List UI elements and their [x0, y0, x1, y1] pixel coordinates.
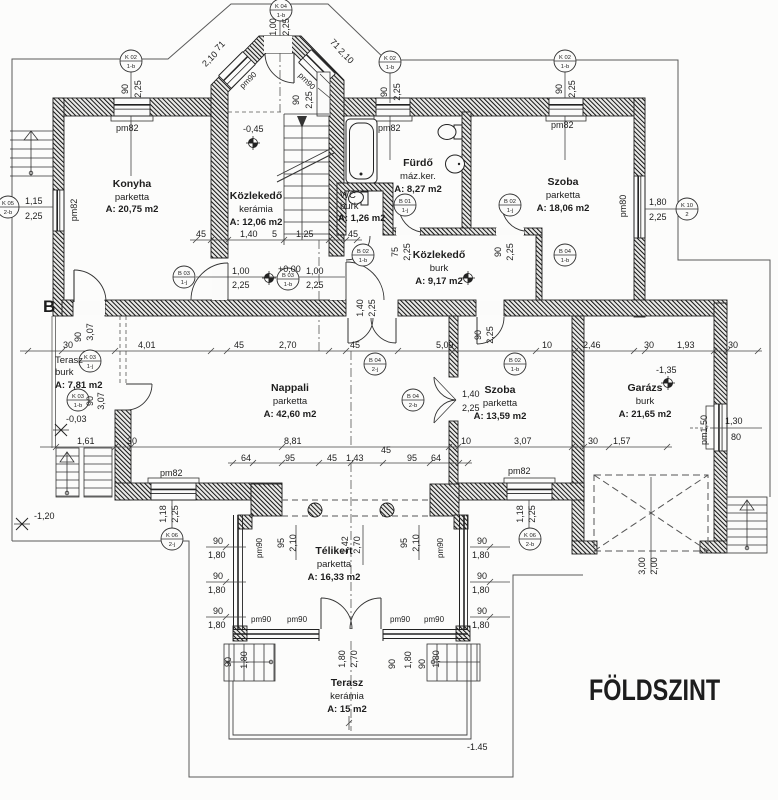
svg-text:1-b: 1-b: [277, 13, 285, 19]
svg-text:90: 90: [493, 247, 503, 257]
svg-text:45: 45: [350, 340, 360, 350]
svg-text:1-b: 1-b: [359, 258, 367, 264]
svg-text:90: 90: [379, 87, 389, 97]
svg-text:90: 90: [73, 332, 83, 342]
svg-text:burk: burk: [636, 396, 655, 407]
svg-text:64: 64: [241, 453, 251, 463]
svg-text:A: 15 m2: A: 15 m2: [327, 704, 367, 715]
svg-text:1,80: 1,80: [472, 585, 490, 595]
svg-text:pm82: pm82: [508, 466, 531, 476]
svg-text:90: 90: [417, 659, 427, 669]
svg-text:1-j: 1-j: [402, 208, 408, 214]
svg-text:K 06: K 06: [166, 533, 178, 539]
svg-text:1,80: 1,80: [239, 651, 249, 669]
svg-text:1-b: 1-b: [561, 258, 569, 264]
svg-text:A: 21,65 m2: A: 21,65 m2: [619, 409, 672, 420]
svg-text:90: 90: [387, 659, 397, 669]
svg-text:1,80: 1,80: [337, 650, 347, 668]
svg-text:K 03: K 03: [72, 394, 84, 400]
svg-text:2,25: 2,25: [170, 505, 180, 523]
svg-text:90: 90: [120, 84, 130, 94]
svg-text:30: 30: [588, 436, 598, 446]
svg-text:30: 30: [644, 340, 654, 350]
svg-text:1-j: 1-j: [507, 208, 513, 214]
svg-text:2,25: 2,25: [527, 505, 537, 523]
svg-text:-0,45: -0,45: [243, 124, 264, 134]
svg-text:pm82: pm82: [69, 199, 79, 222]
svg-text:B: B: [43, 297, 55, 316]
svg-text:90: 90: [477, 571, 487, 581]
svg-text:3,00: 3,00: [637, 557, 647, 575]
svg-text:Garázs: Garázs: [627, 382, 662, 394]
svg-text:parketta: parketta: [115, 192, 150, 203]
svg-text:Fürdő: Fürdő: [403, 157, 433, 169]
svg-text:1,80: 1,80: [208, 550, 226, 560]
svg-text:2-b: 2-b: [526, 542, 534, 548]
svg-text:1,00: 1,00: [232, 266, 250, 276]
svg-text:K 10: K 10: [681, 203, 693, 209]
svg-text:2,70: 2,70: [352, 536, 362, 554]
svg-text:95: 95: [276, 538, 286, 548]
svg-text:Közlekedő: Közlekedő: [413, 249, 466, 261]
svg-text:90: 90: [223, 657, 233, 667]
svg-text:parketta: parketta: [317, 559, 352, 570]
svg-text:64: 64: [431, 453, 441, 463]
svg-text:1,40: 1,40: [355, 299, 365, 317]
svg-text:45: 45: [381, 445, 391, 455]
svg-text:1-j: 1-j: [181, 280, 187, 286]
svg-text:2,70: 2,70: [279, 340, 297, 350]
svg-text:pm1,50: pm1,50: [699, 415, 709, 445]
svg-text:B 04: B 04: [407, 394, 420, 400]
svg-text:pm90: pm90: [251, 615, 272, 624]
svg-text:90: 90: [85, 396, 95, 406]
svg-text:30: 30: [63, 340, 73, 350]
svg-text:1,57: 1,57: [613, 436, 631, 446]
svg-text:2,25: 2,25: [505, 243, 515, 261]
svg-text:1-b: 1-b: [561, 64, 569, 70]
svg-text:3,07: 3,07: [514, 436, 532, 446]
svg-text:Nappali: Nappali: [271, 382, 309, 394]
svg-text:+0,00: +0,00: [278, 264, 301, 274]
svg-text:45: 45: [196, 229, 206, 239]
svg-text:30: 30: [728, 340, 738, 350]
svg-text:2,25: 2,25: [462, 403, 480, 413]
svg-text:45: 45: [327, 453, 337, 463]
svg-text:2,00: 2,00: [649, 557, 659, 575]
svg-text:30: 30: [127, 436, 137, 446]
svg-text:A: 16,33 m2: A: 16,33 m2: [308, 572, 361, 583]
svg-text:1,80: 1,80: [472, 620, 490, 630]
svg-text:1,40: 1,40: [462, 389, 480, 399]
svg-text:pm82: pm82: [378, 123, 401, 133]
svg-text:1,93: 1,93: [677, 340, 695, 350]
svg-text:A: 42,60 m2: A: 42,60 m2: [264, 409, 317, 420]
svg-text:pm90: pm90: [255, 537, 264, 558]
svg-text:10: 10: [542, 340, 552, 350]
svg-text:Terasz: Terasz: [331, 677, 364, 689]
svg-text:A: 12,06 m2: A: 12,06 m2: [230, 217, 283, 228]
svg-text:máz.ker.: máz.ker.: [400, 171, 436, 182]
svg-text:1-b: 1-b: [127, 64, 135, 70]
svg-text:A: 20,75 m2: A: 20,75 m2: [106, 204, 159, 215]
svg-text:pm90: pm90: [287, 615, 308, 624]
svg-text:1,18: 1,18: [515, 505, 525, 523]
svg-text:2,25: 2,25: [402, 243, 412, 261]
svg-text:B 04: B 04: [369, 358, 382, 364]
svg-text:2,46: 2,46: [583, 340, 601, 350]
svg-text:Konyha: Konyha: [113, 178, 152, 190]
svg-text:A: 9,17 m2: A: 9,17 m2: [415, 276, 463, 287]
svg-text:A: 8,27 m2: A: 8,27 m2: [394, 184, 442, 195]
svg-text:1,40: 1,40: [240, 229, 258, 239]
svg-text:1,43: 1,43: [346, 453, 364, 463]
svg-text:Szoba: Szoba: [485, 384, 516, 396]
svg-text:2,25: 2,25: [133, 80, 143, 98]
svg-text:kerámia: kerámia: [330, 691, 365, 702]
svg-text:parketta: parketta: [273, 396, 308, 407]
svg-text:1,00: 1,00: [268, 18, 278, 36]
svg-text:parketta: parketta: [546, 190, 581, 201]
svg-text:1,80: 1,80: [208, 585, 226, 595]
svg-text:1-b: 1-b: [511, 367, 519, 373]
svg-text:75: 75: [390, 247, 400, 257]
svg-text:K 03: K 03: [84, 355, 96, 361]
svg-text:1,80: 1,80: [649, 197, 667, 207]
svg-text:1-b: 1-b: [386, 65, 394, 71]
svg-text:WC: WC: [340, 190, 356, 201]
svg-text:45: 45: [348, 229, 358, 239]
svg-text:90: 90: [477, 606, 487, 616]
svg-text:B 03: B 03: [178, 271, 190, 277]
svg-text:2,25: 2,25: [485, 326, 495, 344]
svg-text:K 02: K 02: [559, 55, 571, 61]
svg-text:45: 45: [234, 340, 244, 350]
svg-text:K 02: K 02: [384, 56, 396, 62]
svg-text:1,80: 1,80: [431, 650, 441, 668]
svg-text:90: 90: [213, 571, 223, 581]
svg-text:2-b: 2-b: [409, 403, 417, 409]
svg-text:90: 90: [477, 536, 487, 546]
svg-text:-0,03: -0,03: [66, 414, 87, 424]
svg-text:Szoba: Szoba: [548, 176, 579, 188]
svg-text:80: 80: [731, 432, 741, 442]
svg-text:Közlekedő: Közlekedő: [230, 190, 283, 202]
svg-text:A: 7,81 m2: A: 7,81 m2: [55, 380, 103, 391]
svg-text:2,25: 2,25: [567, 80, 577, 98]
svg-text:A: 13,59 m2: A: 13,59 m2: [474, 411, 527, 422]
svg-text:pm90: pm90: [424, 615, 445, 624]
svg-text:K 05: K 05: [2, 201, 14, 207]
svg-text:90: 90: [473, 330, 483, 340]
svg-text:pm82: pm82: [551, 120, 574, 130]
svg-text:1,30: 1,30: [725, 416, 743, 426]
svg-text:5,09: 5,09: [436, 340, 454, 350]
svg-text:90: 90: [213, 606, 223, 616]
svg-text:2,25: 2,25: [304, 91, 314, 109]
svg-text:pm90: pm90: [390, 615, 411, 624]
svg-text:95: 95: [285, 453, 295, 463]
svg-text:2-j: 2-j: [372, 367, 378, 373]
svg-text:95: 95: [407, 453, 417, 463]
svg-text:2,25: 2,25: [25, 211, 43, 221]
svg-text:parketta: parketta: [483, 398, 518, 409]
svg-text:90: 90: [213, 536, 223, 546]
svg-text:K 06: K 06: [524, 533, 536, 539]
svg-text:8,81: 8,81: [284, 436, 302, 446]
svg-text:B 02: B 02: [504, 199, 516, 205]
svg-text:FÖLDSZINT: FÖLDSZINT: [589, 673, 721, 706]
svg-text:2: 2: [685, 212, 688, 218]
svg-text:1,15: 1,15: [25, 196, 43, 206]
svg-text:A: 18,06 m2: A: 18,06 m2: [537, 203, 590, 214]
svg-text:10: 10: [461, 436, 471, 446]
svg-text:pm82: pm82: [116, 123, 139, 133]
svg-text:95: 95: [399, 538, 409, 548]
svg-text:4,01: 4,01: [138, 340, 156, 350]
svg-text:1,80: 1,80: [403, 651, 413, 669]
svg-text:B 04: B 04: [559, 249, 572, 255]
svg-text:K 02: K 02: [125, 55, 137, 61]
svg-text:1,25: 1,25: [296, 229, 314, 239]
svg-text:90: 90: [291, 95, 301, 105]
svg-text:pm82: pm82: [160, 468, 183, 478]
svg-text:K 04: K 04: [275, 4, 288, 10]
svg-text:pm80: pm80: [618, 195, 628, 218]
svg-text:1-j: 1-j: [87, 364, 93, 370]
svg-text:90: 90: [554, 84, 564, 94]
svg-text:pm90: pm90: [436, 537, 445, 558]
svg-text:1-b: 1-b: [284, 282, 292, 288]
svg-text:kerámia: kerámia: [239, 204, 274, 215]
svg-text:5: 5: [272, 229, 277, 239]
svg-text:B 02: B 02: [509, 358, 521, 364]
svg-text:burk: burk: [430, 263, 449, 274]
svg-text:2,70: 2,70: [349, 650, 359, 668]
svg-text:2-j: 2-j: [169, 542, 175, 548]
svg-text:-1,35: -1,35: [656, 365, 677, 375]
svg-text:B 01: B 01: [399, 199, 411, 205]
svg-text:2,25: 2,25: [367, 299, 377, 317]
svg-text:-1,20: -1,20: [34, 511, 55, 521]
svg-text:burk: burk: [340, 201, 359, 212]
svg-text:3,07: 3,07: [85, 323, 95, 341]
svg-text:2,10: 2,10: [411, 534, 421, 552]
svg-text:1-b: 1-b: [74, 403, 82, 409]
svg-text:2,25: 2,25: [232, 280, 250, 290]
svg-text:Terasz: Terasz: [55, 355, 83, 366]
svg-text:B 02: B 02: [357, 249, 369, 255]
svg-text:2,25: 2,25: [281, 18, 291, 36]
svg-text:1,80: 1,80: [472, 550, 490, 560]
svg-text:-1.45: -1.45: [467, 742, 488, 752]
svg-text:1,80: 1,80: [208, 620, 226, 630]
svg-text:1,00: 1,00: [306, 266, 324, 276]
svg-text:A: 1,26 m2: A: 1,26 m2: [338, 213, 386, 224]
svg-text:3,07: 3,07: [96, 392, 106, 410]
svg-text:burk: burk: [55, 367, 74, 378]
svg-text:1,42: 1,42: [340, 536, 350, 554]
svg-text:2,25: 2,25: [392, 83, 402, 101]
svg-text:1,18: 1,18: [158, 505, 168, 523]
svg-text:1,61: 1,61: [77, 436, 95, 446]
svg-text:2,25: 2,25: [649, 212, 667, 222]
svg-text:2-b: 2-b: [4, 210, 12, 216]
svg-text:2,10: 2,10: [288, 534, 298, 552]
svg-text:2,25: 2,25: [306, 280, 324, 290]
